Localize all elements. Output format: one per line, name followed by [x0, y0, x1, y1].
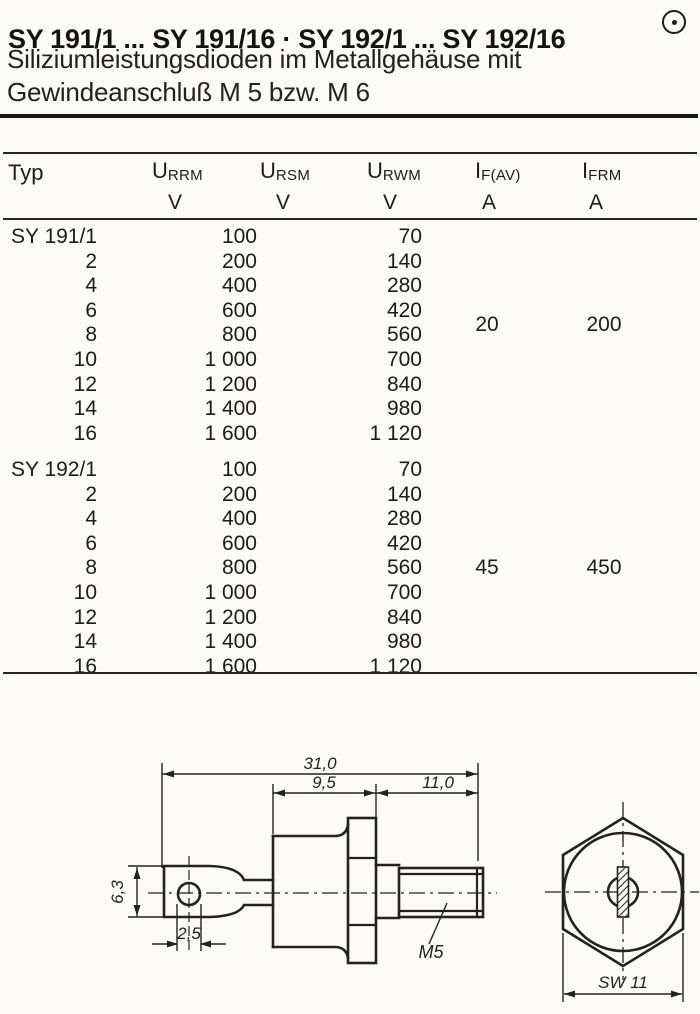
unit-ifrm: A: [589, 190, 622, 216]
cell-typ: 10: [5, 348, 97, 373]
cell-urwm: 420: [270, 532, 422, 557]
body-top-edge: [273, 825, 348, 836]
circled-dot-icon: [662, 10, 686, 34]
body-bottom-edge: [273, 947, 348, 958]
stud-neck: [376, 865, 399, 918]
col-header-ursm: URSM V: [260, 158, 310, 216]
cell-urwm: 980: [270, 397, 422, 422]
cell-urrm: 1 400: [105, 630, 257, 655]
unit-urrm: V: [168, 190, 203, 216]
col-header-urwm: URWM V: [367, 158, 421, 216]
cell-urrm: 600: [105, 299, 257, 324]
dim-stud-label: 11,0: [422, 773, 454, 792]
cell-typ: 12: [5, 373, 97, 398]
cell-urwm: 420: [270, 299, 422, 324]
cell-urrm: 1 000: [105, 581, 257, 606]
lug-section-slot: [618, 867, 629, 917]
cell-urrm: 1 600: [105, 655, 257, 680]
table-bottom-rule: [3, 672, 697, 674]
dim-body-label: 9,5: [312, 773, 336, 792]
symbol-ursm: URSM: [260, 158, 310, 183]
cell-urwm: 560: [270, 556, 422, 581]
unit-if-av: A: [482, 190, 521, 216]
table-row: 10 1 000 700: [5, 581, 695, 606]
cell-typ: 6: [5, 532, 97, 557]
cell-urwm: 1 120: [270, 655, 422, 680]
table-row: SY 192/1 100 70: [5, 458, 695, 483]
cell-typ: 6: [5, 299, 97, 324]
cell-typ: 12: [5, 606, 97, 631]
cell-urrm: 1 000: [105, 348, 257, 373]
cell-typ: 14: [5, 630, 97, 655]
cell-typ: 4: [5, 274, 97, 299]
symbol-urwm: URWM: [367, 158, 421, 183]
table-row: 6 600 420: [5, 532, 695, 557]
cell-urwm: 280: [270, 507, 422, 532]
thread-label: M5: [418, 942, 444, 962]
cell-typ: 16: [5, 422, 97, 447]
datasheet-page: SY 191/1 ... SY 191/16 · SY 192/1 ... SY…: [0, 0, 700, 1014]
cell-ifrm-sy192: 450: [572, 556, 636, 581]
cell-if-av-sy192: 45: [462, 556, 512, 581]
wrench-size-lines: [563, 933, 683, 1002]
threaded-stud: [399, 868, 483, 917]
cell-urwm: 840: [270, 373, 422, 398]
table-row: 16 1 600 1 120: [5, 422, 695, 447]
cell-urwm: 700: [270, 581, 422, 606]
cell-if-av-sy191: 20: [462, 313, 512, 338]
cell-urrm: 100: [105, 458, 257, 483]
cell-urrm: 200: [105, 483, 257, 508]
cell-urrm: 1 600: [105, 422, 257, 447]
body-circle: [564, 833, 682, 951]
hex-outline: [563, 818, 683, 966]
dim-lug-height-lines: [128, 866, 163, 917]
cell-urwm: 140: [270, 250, 422, 275]
col-header-ifrm: IFRM A: [582, 158, 622, 216]
cell-typ: 4: [5, 507, 97, 532]
cell-urwm: 280: [270, 274, 422, 299]
cell-typ: 2: [5, 250, 97, 275]
subtitle-line2: Gewindeanschluß M 5 bzw. M 6: [7, 77, 370, 108]
cell-urwm: 140: [270, 483, 422, 508]
cell-urrm: 400: [105, 507, 257, 532]
table-row: 2 200 140: [5, 483, 695, 508]
thread-lines: [399, 868, 483, 917]
cell-urrm: 800: [105, 556, 257, 581]
dim-total-label: 31,0: [303, 754, 337, 773]
cell-urwm: 70: [270, 458, 422, 483]
cell-urrm: 1 400: [105, 397, 257, 422]
end-view-centerlines: [545, 802, 699, 980]
cell-urwm: 840: [270, 606, 422, 631]
dim-lug-height-label: 6,3: [108, 880, 127, 904]
table-row: 14 1 400 980: [5, 630, 695, 655]
table-row: 4 400 280: [5, 274, 695, 299]
table-row: 16 1 600 1 120: [5, 655, 695, 680]
unit-urwm: V: [383, 190, 421, 216]
unit-ursm: V: [276, 190, 310, 216]
cell-typ: SY 192/1: [5, 458, 97, 483]
lead-circle: [608, 877, 638, 907]
table-row: 14 1 400 980: [5, 397, 695, 422]
cell-urrm: 400: [105, 274, 257, 299]
cell-ifrm-sy191: 200: [572, 313, 636, 338]
table-row: 10 1 000 700: [5, 348, 695, 373]
terminal-lug-outline: [164, 866, 273, 917]
dim-hole-label: 2,5: [176, 924, 201, 943]
cell-urrm: 200: [105, 250, 257, 275]
cell-typ: 16: [5, 655, 97, 680]
cell-urrm: 1 200: [105, 606, 257, 631]
table-row: 4 400 280: [5, 507, 695, 532]
heading-rule: [0, 114, 698, 118]
circled-dot-center: [672, 20, 677, 25]
side-view-drawing: 31,0 9,5 11,0 6,3 2,5 M5: [108, 754, 497, 963]
cell-urwm: 700: [270, 348, 422, 373]
cell-urrm: 1 200: [105, 373, 257, 398]
cell-typ: 2: [5, 483, 97, 508]
cell-typ: SY 191/1: [5, 225, 97, 250]
dim-total-lines: [162, 763, 478, 868]
symbol-urrm: URRM: [152, 158, 203, 183]
table-group-sy192: SY 192/1 100 70 2 200 140 4 400 280 6 60…: [5, 458, 695, 679]
symbol-if-av: IF(AV): [475, 158, 521, 183]
cell-typ: 8: [5, 556, 97, 581]
wrench-size-label: SW 11: [598, 973, 648, 992]
cell-urwm: 560: [270, 323, 422, 348]
cell-urwm: 980: [270, 630, 422, 655]
lug-hole: [178, 883, 200, 905]
table-row: SY 191/1 100 70: [5, 225, 695, 250]
col-header-typ: Typ: [8, 160, 43, 186]
end-view-drawing: SW 11: [545, 802, 699, 1002]
table-group-sy191: SY 191/1 100 70 2 200 140 4 400 280 6 60…: [5, 225, 695, 446]
cell-urwm: 70: [270, 225, 422, 250]
hex-flange: [348, 818, 376, 963]
header-separator-rule: [3, 218, 697, 220]
table-top-rule: [3, 152, 697, 154]
subtitle-line1: Siliziumleistungsdioden im Metallgehäuse…: [7, 44, 521, 75]
cell-urrm: 100: [105, 225, 257, 250]
cell-urrm: 800: [105, 323, 257, 348]
table-row: 12 1 200 840: [5, 373, 695, 398]
thread-leader-line: [429, 903, 447, 944]
symbol-ifrm: IFRM: [582, 158, 622, 183]
table-row: 2 200 140: [5, 250, 695, 275]
col-header-urrm: URRM V: [152, 158, 203, 216]
table-row: 12 1 200 840: [5, 606, 695, 631]
cell-typ: 8: [5, 323, 97, 348]
cell-typ: 14: [5, 397, 97, 422]
dim-hole-lines: [152, 904, 226, 951]
col-header-if-av: IF(AV) A: [475, 158, 521, 216]
hex-flange-facets: [348, 858, 376, 925]
dim-body-stud-lines: [273, 784, 478, 834]
cell-urrm: 600: [105, 532, 257, 557]
cell-urwm: 1 120: [270, 422, 422, 447]
cell-typ: 10: [5, 581, 97, 606]
